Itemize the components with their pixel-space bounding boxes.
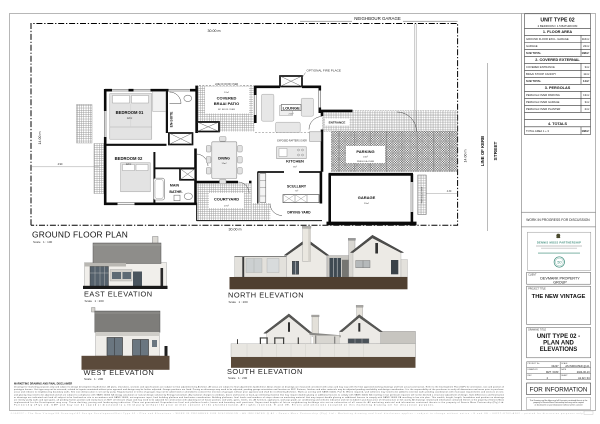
svg-text:MAIN: MAIN: [170, 184, 180, 188]
svg-text:COVERED: COVERED: [217, 96, 237, 101]
svg-text:LOUNGE: LOUNGE: [283, 105, 300, 110]
svg-text:PROJECT TITLE: PROJECT TITLE: [528, 288, 546, 290]
svg-text:GARAGE: GARAGE: [526, 44, 538, 48]
svg-text:PERGOLA OVER: PERGOLA OVER: [357, 160, 375, 163]
svg-text:9m²: 9m²: [293, 166, 297, 169]
svg-text:30.00 m: 30.00 m: [229, 228, 242, 232]
svg-text:22m²: 22m²: [583, 44, 589, 48]
svg-text:3. PERGOLAS: 3. PERGOLAS: [545, 86, 571, 90]
svg-text:2024-06-13: 2024-06-13: [577, 371, 590, 374]
svg-text:DINING: DINING: [218, 157, 230, 161]
svg-text:Scale 1 : 200: Scale 1 : 200: [84, 377, 104, 381]
svg-text:PERGOLA OVER PARKING: PERGOLA OVER PARKING: [526, 93, 560, 97]
svg-text:EXPOSED RAFTERS OVER: EXPOSED RAFTERS OVER: [277, 139, 307, 142]
svg-text:22m²: 22m²: [364, 202, 369, 205]
svg-text:116m²: 116m²: [582, 37, 590, 41]
svg-text:prototype houses. Unit type ma: prototype houses. Unit type may not be m…: [14, 388, 504, 391]
svg-text:3m²: 3m²: [585, 100, 590, 104]
svg-text:138m²: 138m²: [582, 51, 590, 55]
svg-text:BRAAI PATIO: BRAAI PATIO: [214, 101, 239, 106]
svg-text:EAST ELEVATION: EAST ELEVATION: [84, 290, 153, 299]
svg-text:are merely partly walls and sp: are merely partly walls and spot gates, …: [14, 398, 504, 401]
svg-text:2m²: 2m²: [585, 107, 590, 111]
svg-text:2 BEDROOM / 1.5 BATHROOM: 2 BEDROOM / 1.5 BATHROOM: [538, 24, 578, 28]
svg-text:17m²: 17m²: [224, 91, 229, 94]
svg-text:4. TOTALS: 4. TOTALS: [548, 122, 568, 126]
svg-text:14m²: 14m²: [583, 79, 589, 83]
svg-text:ENTRANCE: ENTRANCE: [329, 121, 346, 125]
svg-text:Scale 1 : 100: Scale 1 : 100: [33, 240, 53, 244]
svg-text:Scale 1 : 200: Scale 1 : 200: [229, 300, 249, 304]
svg-text:GROUND FLOOR PLAN: GROUND FLOOR PLAN: [32, 230, 128, 240]
svg-text:CLIENT: CLIENT: [528, 275, 537, 277]
svg-text:2. COVERED EXTERNAL: 2. COVERED EXTERNAL: [535, 58, 580, 62]
svg-text:DRAWING TITLE: DRAWING TITLE: [528, 329, 546, 332]
svg-text:DRAWN BY: DRAWN BY: [528, 368, 539, 371]
svg-text:3m²: 3m²: [585, 65, 590, 69]
svg-text:COVERED ENTRANCE: COVERED ENTRANCE: [526, 65, 555, 69]
svg-text:SCULLERY: SCULLERY: [287, 185, 307, 189]
svg-text:PARKING: PARKING: [356, 149, 374, 154]
svg-text:50: 50: [557, 260, 562, 265]
svg-text:STREET: STREET: [493, 141, 499, 160]
svg-text:A1.02 / 04: A1.02 / 04: [578, 377, 590, 380]
svg-text:GARAGE: GARAGE: [358, 195, 376, 200]
svg-text:12m²: 12m²: [127, 117, 133, 120]
svg-text:WEST ELEVATION: WEST ELEVATION: [84, 368, 155, 377]
svg-text:BEDROOM 02: BEDROOM 02: [115, 156, 143, 161]
svg-text:LINE OF ROOF OVER: LINE OF ROOF OVER: [215, 84, 239, 86]
svg-text:DRYING YARD: DRYING YARD: [287, 211, 311, 215]
svg-text:27m²: 27m²: [224, 205, 229, 208]
svg-text:OPTIONAL FIRE PLACE: OPTIONAL FIRE PLACE: [307, 68, 341, 72]
svg-text:GROUP: GROUP: [553, 280, 567, 284]
svg-text:implemented for the Developmen: implemented for the Development may vary…: [14, 401, 504, 404]
svg-text:BRAAI STOOP CANOPY: BRAAI STOOP CANOPY: [526, 72, 556, 76]
svg-text:TOTAL AREA 1 + 3: TOTAL AREA 1 + 3: [526, 129, 549, 133]
svg-text:or disclosed in or part whatso: or disclosed in or part whatsoever witho…: [534, 404, 582, 407]
svg-text:areas and rebates to neighbour: areas and rebates to neighbouring bounda…: [14, 391, 504, 394]
svg-text:2: 2: [547, 377, 549, 380]
svg-text:KITCHEN: KITCHEN: [286, 159, 304, 164]
svg-text:and glazing may need to be adj: and glazing may need to be adjusted and …: [14, 393, 505, 396]
svg-text:MARKETING DRAWING AND FINAL DI: MARKETING DRAWING AND FINAL DISCLAIMER: [14, 383, 72, 386]
svg-text:AS INDICATED @ A1: AS INDICATED @ A1: [565, 365, 590, 368]
svg-text:UNIT TYPE 02 -: UNIT TYPE 02 -: [537, 334, 580, 340]
svg-text:BATHR.: BATHR.: [169, 190, 182, 194]
svg-text:SUB TOTAL: SUB TOTAL: [526, 51, 541, 55]
svg-text:138m²: 138m²: [582, 129, 590, 133]
svg-text:14.00 m: 14.00 m: [464, 150, 468, 163]
svg-text:GROUND FLOOR EXCL. GARAGE: GROUND FLOOR EXCL. GARAGE: [526, 37, 569, 41]
svg-text:30.00 m: 30.00 m: [208, 29, 221, 33]
svg-text:11m²: 11m²: [583, 72, 589, 76]
svg-text:SUB TOTAL: SUB TOTAL: [526, 79, 541, 83]
svg-text:Scale 1 : 200: Scale 1 : 200: [228, 376, 248, 380]
svg-text:BEDROOM 01: BEDROOM 01: [116, 110, 144, 115]
svg-text:Partnership (Pty) Ltd. DMP and: Partnership (Pty) Ltd. DMP and may not b…: [14, 403, 434, 406]
svg-text:PERGOLA OVER: PERGOLA OVER: [420, 186, 423, 203]
svg-text:13m²: 13m²: [583, 93, 589, 97]
svg-text:EN-SUITE: EN-SUITE: [170, 111, 174, 128]
svg-text:04227: 04227: [552, 365, 560, 368]
svg-text:PROJECT No: PROJECT No: [528, 363, 540, 365]
svg-text:12m²: 12m²: [126, 163, 132, 166]
svg-text:PLAN AND: PLAN AND: [543, 341, 574, 347]
svg-text:4.30: 4.30: [447, 191, 452, 193]
svg-text:UNIT TYPE 02: UNIT TYPE 02: [540, 18, 574, 24]
svg-text:COURTYARD: COURTYARD: [214, 197, 239, 202]
svg-text:14.00 m: 14.00 m: [38, 132, 42, 145]
svg-text:ELEVATIONS: ELEVATIONS: [540, 347, 577, 353]
svg-text:RC ROOF OVER: RC ROOF OVER: [218, 109, 235, 111]
svg-text:or drawings are indicated unti: or drawings are indicated until and all …: [14, 396, 504, 399]
svg-text:Drawings for marketing purpose: Drawings for marketing purposes only and…: [14, 386, 504, 389]
svg-text:21m²: 21m²: [289, 113, 294, 116]
svg-text:12m²: 12m²: [222, 162, 227, 165]
svg-text:DATE: DATE: [561, 368, 567, 371]
svg-text:FOR INFORMATION: FOR INFORMATION: [530, 387, 588, 394]
svg-text:SOUTH ELEVATION: SOUTH ELEVATION: [227, 367, 303, 376]
svg-text:7m²: 7m²: [295, 190, 299, 193]
svg-text:REV: REV: [528, 375, 533, 377]
svg-text:NEIGHBOUR GARAGE: NEIGHBOUR GARAGE: [354, 16, 401, 21]
svg-text:NORTH ELEVATION: NORTH ELEVATION: [228, 291, 304, 300]
svg-text:4.90: 4.90: [58, 163, 63, 166]
svg-text:J:\04227 - The New Vintage\04: J:\04227 - The New Vintage\04 Drawings\0…: [11, 412, 584, 415]
svg-text:1. FLOOR AREA: 1. FLOOR AREA: [543, 30, 572, 34]
svg-text:Scale 1 : 200: Scale 1 : 200: [85, 299, 105, 303]
svg-text:PERGOLA OVER GARAGE: PERGOLA OVER GARAGE: [526, 100, 560, 104]
svg-text:WORK IN PROGRESS FOR DISCUSSIO: WORK IN PROGRESS FOR DISCUSSION: [526, 218, 590, 222]
svg-text:DENNIS MOSS PARTNERSHIP: DENNIS MOSS PARTNERSHIP: [537, 241, 581, 245]
svg-text:MZT / DVR: MZT / DVR: [546, 371, 559, 374]
svg-text:SHEET: SHEET: [561, 375, 568, 377]
svg-text:13m²: 13m²: [363, 156, 368, 159]
svg-text:LINE OF KERB: LINE OF KERB: [480, 136, 485, 166]
svg-text:PERGOLA OVER PLANTER: PERGOLA OVER PLANTER: [526, 107, 560, 111]
svg-text:THE NEW VINTAGE: THE NEW VINTAGE: [532, 294, 586, 300]
